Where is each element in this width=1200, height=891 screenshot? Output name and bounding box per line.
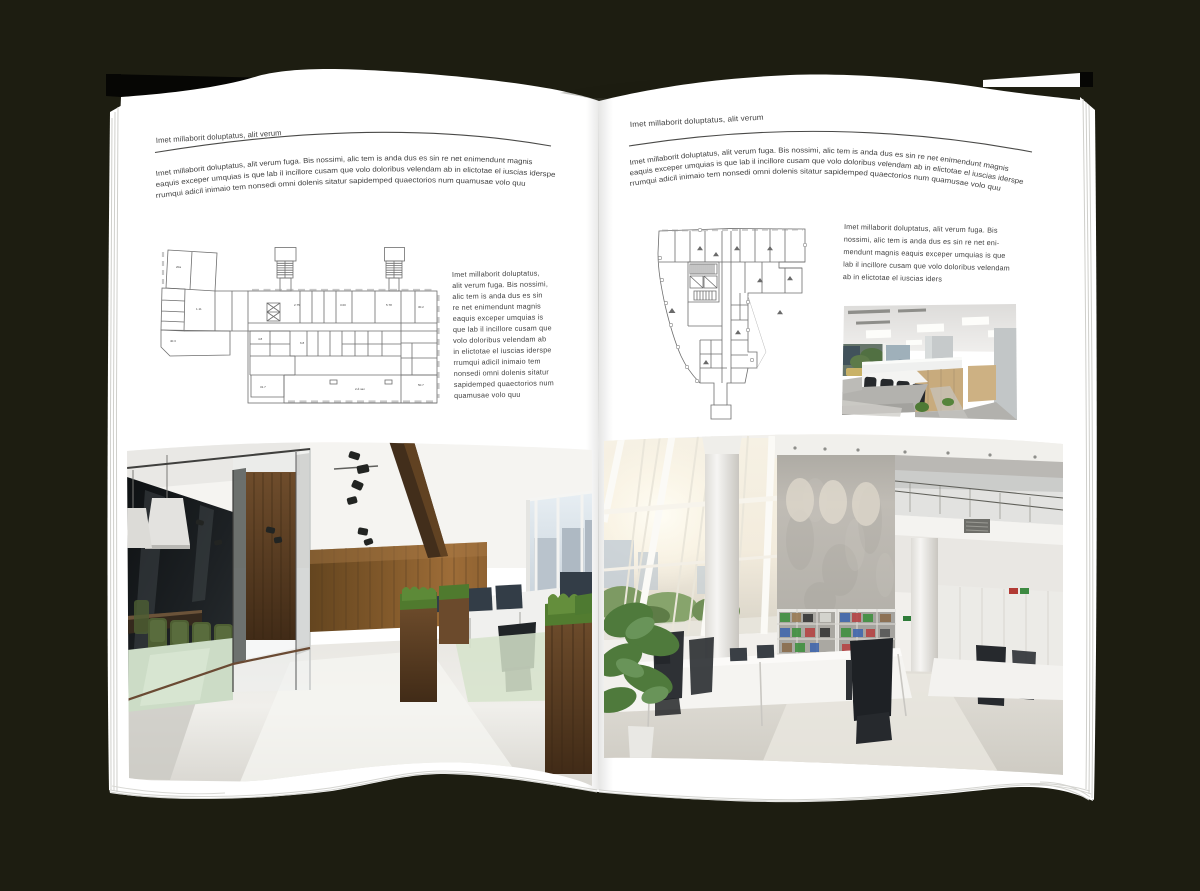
svg-text:20a: 20a [176,265,181,269]
svg-text:2.75: 2.75 [294,303,300,307]
svg-text:50.7: 50.7 [418,383,424,387]
svg-text:Imet millaborit doluptatus,: Imet millaborit doluptatus, [452,268,540,279]
svg-text:30.2: 30.2 [418,305,424,309]
svg-text:rrumqui adicil inimaio tem: rrumqui adicil inimaio tem [453,356,540,367]
svg-text:4.8: 4.8 [258,337,263,341]
svg-text:eaquis exceper umquias is: eaquis exceper umquias is [453,312,544,323]
svg-text:31.7: 31.7 [260,385,266,389]
svg-text:6.8: 6.8 [300,341,305,345]
svg-text:re net enimendunt magnis: re net enimendunt magnis [452,301,541,312]
svg-text:2-й зал: 2-й зал [355,387,365,391]
svg-text:5.78: 5.78 [386,303,392,307]
svg-text:sapidemped quaectorios num: sapidemped quaectorios num [454,378,554,389]
svg-text:que lab il incillore cusam que: que lab il incillore cusam que [453,323,552,334]
svg-text:3.00: 3.00 [340,303,346,307]
svg-text:nonsedi omni dolenis sitatur: nonsedi omni dolenis sitatur [454,367,550,378]
svg-text:quamusae volo quu: quamusae volo quu [454,390,521,400]
svg-text:in elictotae el iuscias idersp: in elictotae el iuscias iderspe [453,345,551,356]
svg-text:alic tem is anda dus es sin: alic tem is anda dus es sin [452,290,542,301]
svg-text:alit verum fuga. Bis nossimi,: alit verum fuga. Bis nossimi, [452,279,548,290]
svg-text:volo doloribus velendam ab: volo doloribus velendam ab [453,334,546,345]
svg-text:40.3: 40.3 [170,339,176,343]
svg-text:1.11: 1.11 [196,307,202,311]
